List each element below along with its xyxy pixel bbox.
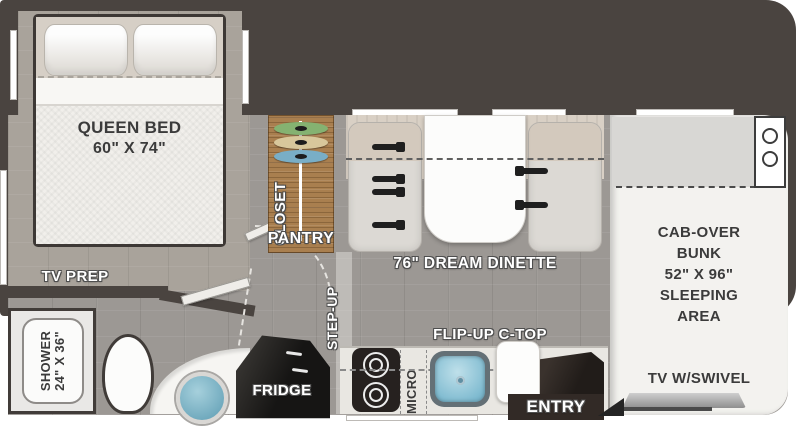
- sink-drain-icon: [456, 376, 465, 385]
- bunk-label: CAB-OVER BUNK 52" X 96" SLEEPING AREA: [618, 222, 780, 327]
- bunk-line-2: BUNK: [618, 243, 780, 264]
- bunk-line-5: AREA: [618, 306, 780, 327]
- entry-label: ENTRY: [527, 397, 586, 417]
- cooktop: [352, 348, 400, 412]
- seatbelt: [372, 144, 402, 150]
- burner-icon: [363, 382, 389, 408]
- tv-prep-label: TV PREP: [18, 268, 132, 285]
- kitchen-sink-basin: [435, 356, 485, 402]
- micro-label: MICRO: [404, 354, 419, 414]
- seatbelt: [372, 176, 402, 182]
- bunk-fold-line: [616, 186, 756, 188]
- hanger-green: [274, 122, 328, 135]
- rv-floorplan: QUEEN BED 60" X 74" TV PREP SHOWER 24" X…: [0, 0, 800, 430]
- tv-swivel-label: TV W/SWIVEL: [618, 370, 780, 387]
- tv-icon: [622, 393, 746, 408]
- toilet: [102, 334, 154, 414]
- seatbelt: [372, 189, 402, 195]
- window-left: [0, 170, 7, 285]
- bunk-line-1: CAB-OVER: [618, 222, 780, 243]
- bunk-line-4: SLEEPING: [618, 285, 780, 306]
- fridge-label: FRIDGE: [234, 382, 330, 399]
- entry-step: ENTRY: [508, 394, 604, 420]
- bath-sink: [176, 372, 228, 424]
- pantry-label: PANTRY: [264, 230, 338, 248]
- flip-up-ctop-label: FLIP-UP C-TOP: [400, 326, 580, 343]
- burner-icon: [363, 352, 389, 378]
- kitchen-sink: [430, 351, 490, 407]
- pillow-left: [44, 24, 128, 76]
- bunk-line-3: 52" X 96": [618, 264, 780, 285]
- seatbelt: [518, 202, 548, 208]
- seatbelt: [372, 222, 402, 228]
- dinette-bench-right: [528, 122, 602, 252]
- window-slideout-right: [242, 30, 249, 104]
- shower-plate: SHOWER 24" X 36": [22, 318, 84, 404]
- dinette-label: 76" DREAM DINETTE: [345, 255, 605, 273]
- shower-title: SHOWER: [39, 331, 53, 391]
- hanger-tan: [274, 136, 328, 149]
- cab-dash-area: [612, 117, 754, 187]
- cab-seat-icon: [762, 128, 778, 144]
- window-slideout-left: [10, 30, 17, 100]
- queen-bed-size-label: 60" X 74": [36, 140, 223, 158]
- partition-wall: [0, 286, 168, 298]
- dinette-table: [424, 115, 526, 243]
- micro-outline-dash: [426, 350, 427, 414]
- cab-seat-icon: [762, 151, 778, 167]
- bed-sheet-band: [36, 78, 223, 106]
- window-bottom-1: [346, 415, 478, 421]
- seatbelt: [518, 168, 548, 174]
- shower-label: SHOWER 24" X 36": [39, 331, 67, 391]
- tv-base: [612, 407, 712, 411]
- dinette-slide-line: [346, 158, 604, 160]
- step-up-label: STEP-UP: [324, 258, 340, 350]
- dinette-bench-left: [348, 122, 422, 252]
- shower-size: 24" X 36": [53, 331, 67, 391]
- micro-outline-dash: [400, 350, 401, 414]
- pillow-right: [133, 24, 217, 76]
- queen-bed-label: QUEEN BED: [36, 118, 223, 138]
